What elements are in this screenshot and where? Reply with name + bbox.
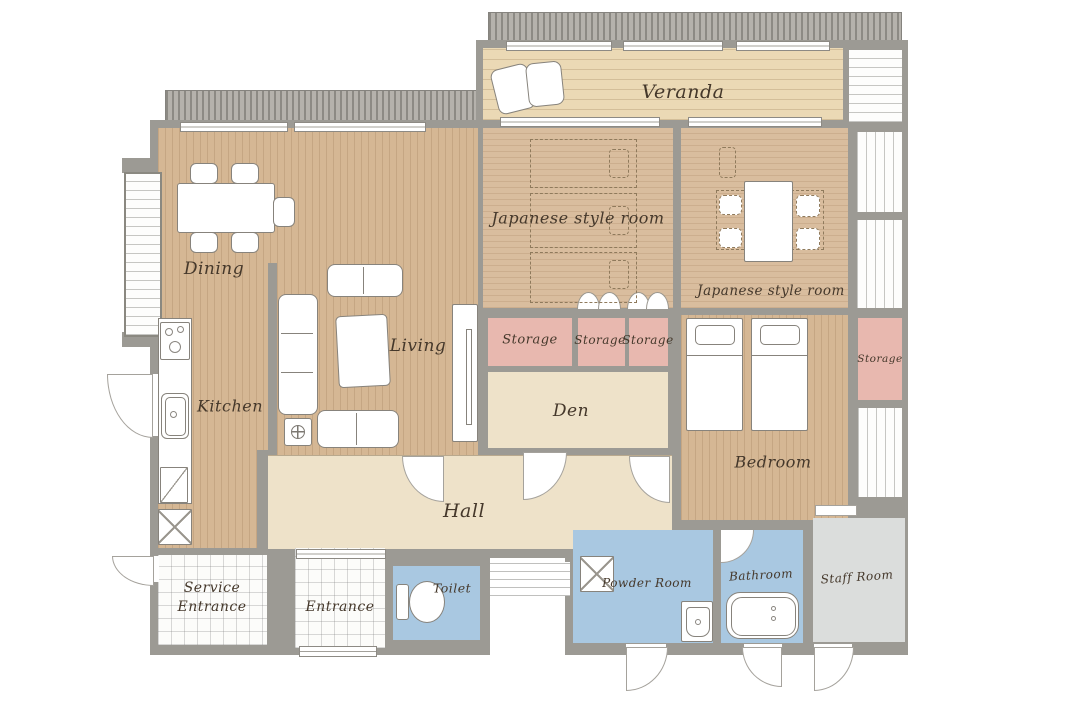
pillow-icon	[609, 149, 629, 178]
dining-chair-icon	[190, 232, 218, 253]
door-arc-icon	[814, 647, 854, 691]
floor-cushion-icon	[796, 228, 820, 250]
room-label-storage-3: Storage	[622, 333, 673, 347]
floor-cushion-icon	[796, 195, 820, 217]
refrigerator-icon	[158, 509, 192, 545]
window	[506, 41, 612, 51]
veranda-corner-alcove	[849, 50, 902, 122]
room-label-veranda: Veranda	[642, 81, 725, 103]
floor-cushion-icon	[719, 195, 742, 215]
floor-cushion-icon	[719, 228, 742, 248]
window	[736, 41, 830, 51]
lounge-chair-icon	[525, 60, 565, 108]
window	[294, 122, 426, 132]
room-label-toilet: Toilet	[433, 581, 471, 596]
closet-right-3	[858, 408, 902, 497]
room-label-kitchen: Kitchen	[197, 397, 263, 416]
closet-right-1	[857, 132, 902, 212]
room-label-hall: Hall	[443, 500, 485, 522]
single-bed-icon	[686, 318, 743, 431]
single-bed-icon	[751, 318, 808, 431]
dining-table-icon	[177, 183, 275, 233]
staff-room-door	[815, 505, 857, 516]
room-entrance	[295, 548, 385, 648]
low-table-icon	[744, 181, 793, 262]
cushion-stack	[719, 147, 736, 178]
room-label-dining: Dining	[184, 259, 244, 279]
kitchen-sink-icon	[161, 393, 189, 439]
coffee-table-icon	[335, 314, 391, 389]
washbasin-icon	[681, 601, 713, 642]
room-label-living: Living	[390, 336, 447, 356]
wall	[257, 450, 268, 555]
wall	[122, 158, 158, 173]
room-label-den: Den	[553, 401, 589, 421]
kitchen-cabinet-icon	[160, 467, 188, 503]
bay-window	[124, 172, 162, 337]
entrance-door	[299, 646, 377, 657]
step-lines	[490, 562, 570, 596]
window	[180, 122, 288, 132]
dining-chair-icon	[231, 232, 259, 253]
window	[623, 41, 723, 51]
dining-chair-icon	[190, 163, 218, 184]
room-label-storage-1: Storage	[502, 333, 557, 348]
floor-plan: Veranda Japanese style room Japanese sty…	[0, 0, 1080, 720]
loveseat-icon	[327, 264, 403, 297]
window	[500, 117, 660, 127]
door-arc-icon	[742, 647, 782, 687]
side-table-icon	[284, 418, 312, 446]
door-arc-icon	[112, 556, 154, 586]
room-label-service-entrance: Service Entrance	[177, 579, 246, 617]
door-arc-icon	[107, 374, 153, 438]
room-label-japanese-right: Japanese style room	[697, 283, 845, 299]
window	[688, 117, 822, 127]
entrance-step	[296, 549, 386, 559]
room-label-bedroom: Bedroom	[734, 453, 811, 472]
exterior-hatch-top-left	[165, 90, 480, 124]
room-label-japanese-top: Japanese style room	[491, 209, 664, 228]
room-label-storage-right: Storage	[857, 353, 902, 365]
room-label-powder-room: Powder Room	[602, 576, 692, 590]
closet-right-2	[857, 220, 902, 308]
tv-board-icon	[452, 304, 478, 442]
dining-chair-icon	[231, 163, 259, 184]
room-label-entrance: Entrance	[305, 599, 374, 615]
stove-icon	[160, 322, 190, 360]
door-arc-icon	[626, 647, 668, 691]
dining-chair-icon	[273, 197, 295, 227]
sofa-icon	[278, 294, 318, 415]
bathtub-icon	[726, 592, 799, 639]
pillow-icon	[609, 260, 629, 289]
room-label-storage-2: Storage	[574, 333, 625, 347]
wall	[268, 263, 277, 455]
loveseat-icon	[317, 410, 399, 448]
